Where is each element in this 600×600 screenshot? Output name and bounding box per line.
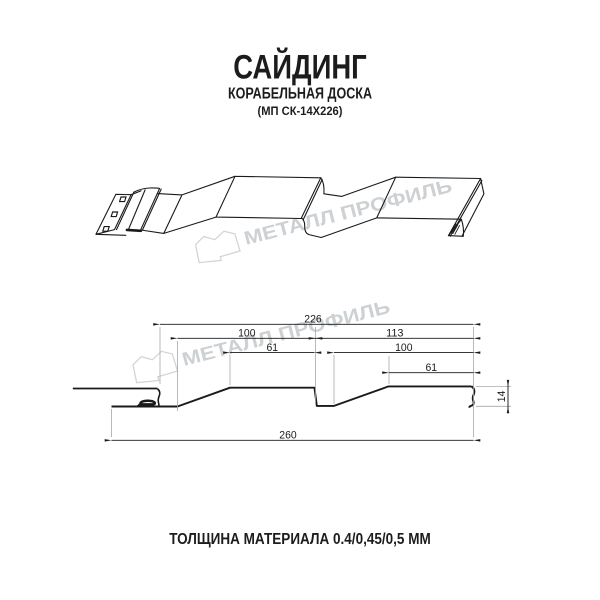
svg-text:61: 61 xyxy=(267,342,279,354)
svg-text:САЙДИНГ: САЙДИНГ xyxy=(233,47,367,86)
svg-text:(МП СК-14Х226): (МП СК-14Х226) xyxy=(258,104,343,118)
svg-text:100: 100 xyxy=(395,342,412,354)
svg-text:КОРАБЕЛЬНАЯ ДОСКА: КОРАБЕЛЬНАЯ ДОСКА xyxy=(228,85,372,102)
svg-text:ТОЛЩИНА МАТЕРИАЛА 0.4/0,45/0,5: ТОЛЩИНА МАТЕРИАЛА 0.4/0,45/0,5 ММ xyxy=(169,531,431,548)
svg-text:61: 61 xyxy=(426,362,438,374)
svg-text:МЕТАЛЛ ПРОФИЛЬ: МЕТАЛЛ ПРОФИЛЬ xyxy=(242,176,454,250)
svg-text:260: 260 xyxy=(279,430,296,442)
svg-text:113: 113 xyxy=(386,328,403,340)
svg-text:МЕТАЛЛ ПРОФИЛЬ: МЕТАЛЛ ПРОФИЛЬ xyxy=(180,297,392,371)
svg-text:100: 100 xyxy=(238,328,255,340)
svg-text:14: 14 xyxy=(496,391,508,403)
svg-text:226: 226 xyxy=(304,314,321,326)
